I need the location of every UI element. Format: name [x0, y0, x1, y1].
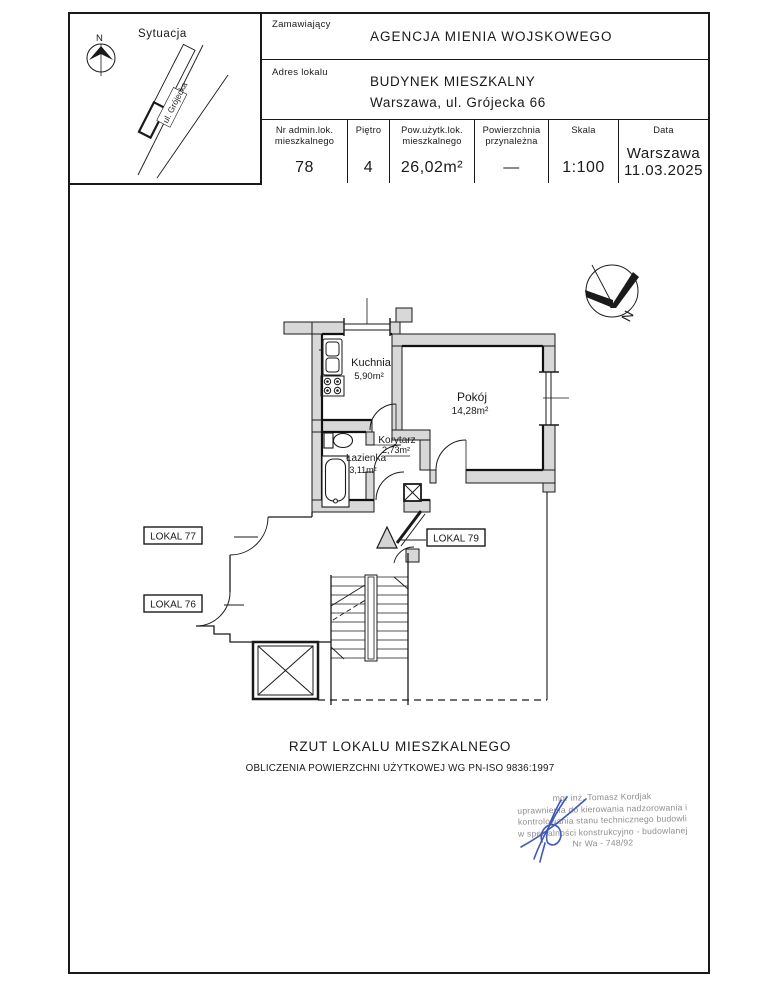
room-label-bathroom: Łazienka — [346, 453, 386, 464]
address-value: BUDYNEK MIESZKALNY Warszawa, ul. Grójeck… — [362, 60, 708, 119]
stove-icon — [321, 376, 344, 396]
room-area-kitchen: 5,90m² — [354, 371, 384, 382]
entrance-door — [377, 511, 426, 548]
label-lokal-76: LOKAL 76 — [150, 600, 196, 611]
elevator-shaft — [253, 642, 318, 699]
cell-scale: Skala 1:100 — [549, 120, 619, 183]
room-label-room: Pokój — [457, 390, 487, 404]
address-label: Adres lokalu — [262, 60, 362, 119]
date-value: Warszawa 11.03.2025 — [624, 145, 703, 180]
plan-north-arrow-icon: N — [585, 265, 639, 324]
room-labels: Kuchnia 5,90m² Pokój 14,28m² Korytarz 2,… — [346, 357, 489, 475]
cell-adjacent-area: Powierzchnia przynależna — — [475, 120, 549, 183]
caption-subtitle: OBLICZENIA POWIERZCHNI UŻYTKOWEJ WG PN-I… — [240, 763, 560, 774]
room-area-room: 14,28m² — [452, 406, 489, 417]
neighbor-labels: LOKAL 77 LOKAL 79 LOKAL 76 — [144, 527, 485, 612]
toilet-icon — [324, 433, 353, 448]
label-lokal-79: LOKAL 79 — [433, 534, 479, 545]
room-label-kitchen: Kuchnia — [351, 357, 392, 369]
cell-floor: Piętro 4 — [348, 120, 390, 183]
room-area-bathroom: 3,11m² — [349, 465, 376, 475]
label-lokal-77: LOKAL 77 — [150, 532, 196, 543]
title-block-meta-row: Nr admin.lok. mieszkalnego 78 Piętro 4 P… — [262, 120, 708, 183]
bathtub-icon — [322, 456, 349, 507]
address-line2: Warszawa, ul. Grójecka 66 — [370, 93, 708, 114]
client-value: AGENCJA MIENIA WOJSKOWEGO — [362, 12, 708, 59]
plan-north-label: N — [618, 308, 637, 324]
floor-plan: N — [0, 230, 773, 720]
situation-north-label: N — [96, 33, 103, 44]
address-line1: BUDYNEK MIESZKALNY — [370, 72, 708, 93]
caption-title: RZUT LOKALU MIESZKALNEGO — [240, 739, 560, 754]
room-window — [539, 372, 569, 425]
signature — [500, 785, 620, 870]
wall-pillar-icon — [404, 484, 421, 501]
client-label: Zamawiający — [262, 12, 362, 59]
title-block: Zamawiający AGENCJA MIENIA WOJSKOWEGO Ad… — [262, 12, 708, 183]
cell-usable-area: Pow.użytk.lok. mieszkalnego 26,02m² — [390, 120, 475, 183]
title-block-address-row: Adres lokalu BUDYNEK MIESZKALNY Warszawa… — [262, 60, 708, 120]
cell-date: Data Warszawa 11.03.2025 — [619, 120, 708, 183]
kitchen-window — [344, 298, 390, 336]
title-block-client-row: Zamawiający AGENCJA MIENIA WOJSKOWEGO — [262, 12, 708, 60]
situation-title: Sytuacja — [138, 28, 187, 40]
entrance-triangle-icon — [377, 527, 397, 548]
room-area-corridor: 2,73m² — [382, 445, 410, 455]
staircase — [331, 575, 408, 705]
drawing-sheet: N ul. Grójecka Sytuacja Zamaw — [0, 0, 773, 1000]
drawing-caption: RZUT LOKALU MIESZKALNEGO OBLICZENIA POWI… — [240, 739, 560, 774]
situation-north-arrow-icon: N — [87, 33, 115, 76]
cell-admin-number: Nr admin.lok. mieszkalnego 78 — [262, 120, 348, 183]
